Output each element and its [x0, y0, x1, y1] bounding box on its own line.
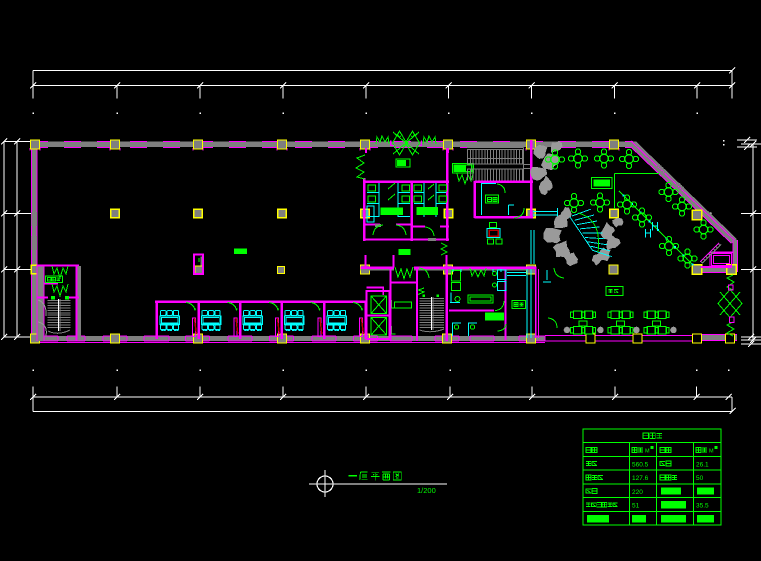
svg-text:127.6: 127.6	[632, 475, 649, 482]
svg-text:26.1: 26.1	[696, 462, 709, 469]
svg-text:M: M	[645, 449, 650, 455]
svg-text:51: 51	[632, 503, 640, 510]
svg-text:560.5: 560.5	[632, 462, 649, 469]
svg-text:220: 220	[632, 489, 643, 496]
svg-text:35.5: 35.5	[696, 503, 709, 510]
svg-text:1/200: 1/200	[417, 486, 436, 495]
svg-text:M: M	[709, 449, 714, 455]
svg-text:50: 50	[696, 475, 704, 482]
